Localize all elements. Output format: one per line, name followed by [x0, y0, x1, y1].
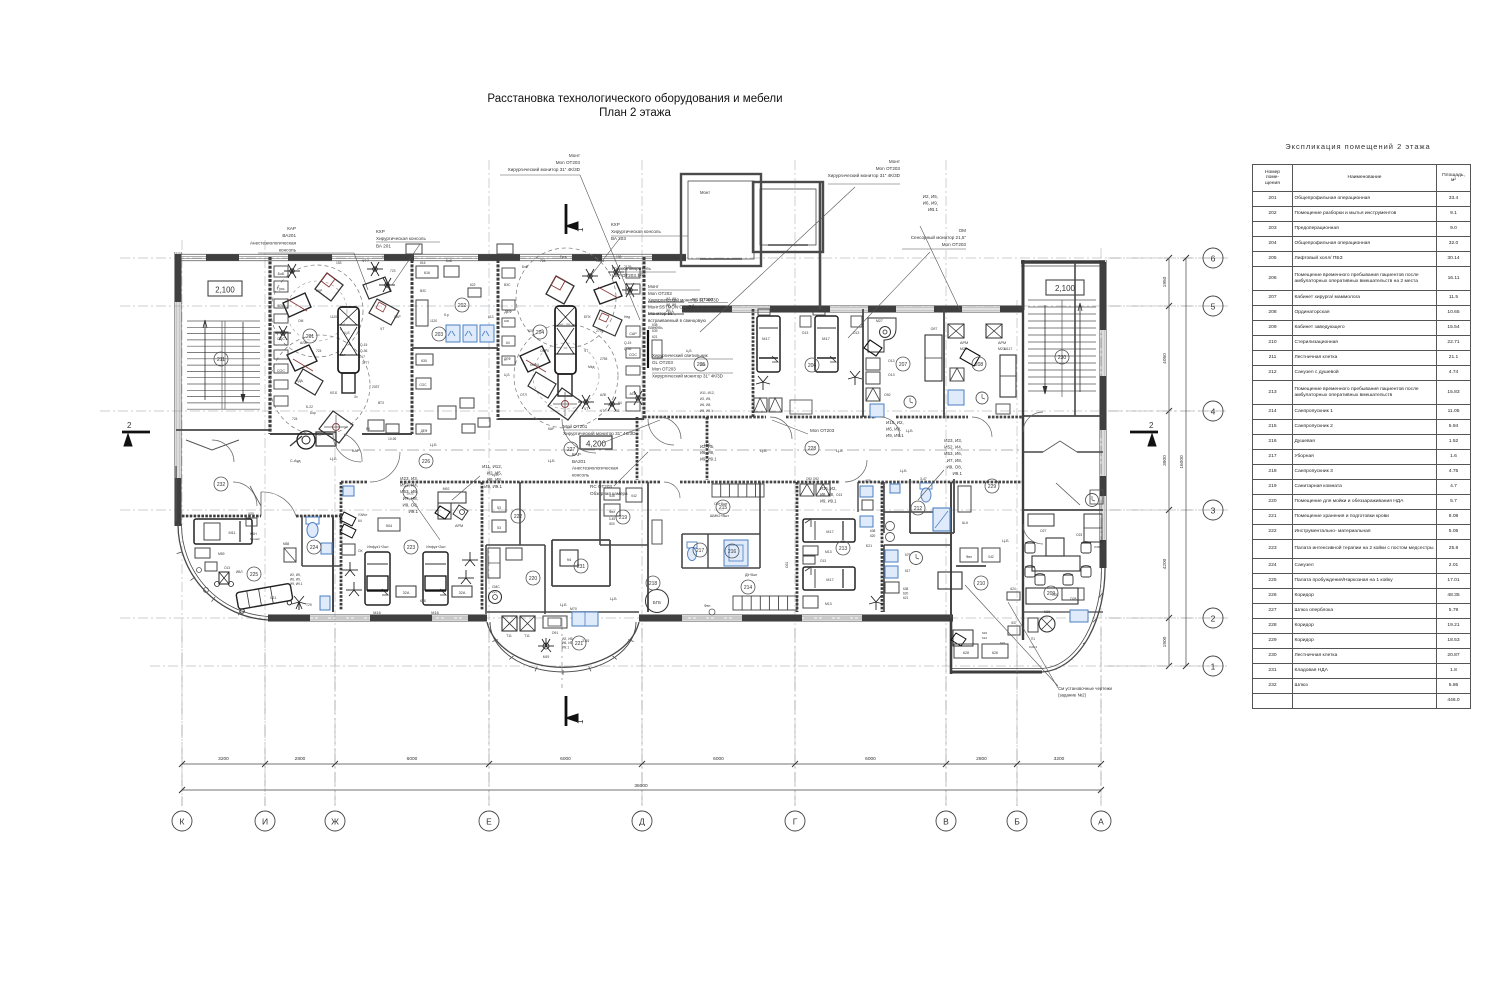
svg-text:СОС: СОС: [277, 337, 285, 341]
svg-text:218: 218: [649, 581, 658, 587]
svg-text:64: 64: [506, 341, 510, 345]
svg-text:16000: 16000: [1179, 455, 1185, 469]
svg-text:ШМК2+8шт: ШМК2+8шт: [710, 514, 729, 518]
svg-text:Т29: Т29: [306, 603, 312, 607]
svg-text:Ц-Б: Ц-Б: [836, 449, 843, 453]
svg-text:Mon ОТ203: Mon ОТ203: [648, 291, 672, 296]
svg-text:Д: Д: [639, 817, 645, 827]
svg-text:М17: М17: [826, 578, 833, 582]
svg-text:220: 220: [529, 576, 538, 582]
svg-text:ВЗС: ВЗС: [277, 304, 284, 308]
svg-text:Анестезиологическая: Анестезиологическая: [250, 240, 297, 245]
svg-text:Ц-Б: Ц-Б: [906, 429, 913, 433]
svg-text:УЗИст: УЗИст: [358, 513, 368, 517]
svg-text:Q-36: Q-36: [360, 349, 367, 353]
svg-text:223: 223: [407, 545, 416, 551]
svg-text:И23, И3,: И23, И3,: [400, 476, 418, 481]
svg-text:Е: Е: [486, 817, 492, 827]
svg-text:3-45: 3-45: [609, 517, 616, 521]
svg-text:КАР: КАР: [352, 448, 360, 453]
svg-text:3200: 3200: [218, 756, 229, 762]
svg-text:БоБ: БоБ: [446, 259, 452, 263]
svg-text:И9, И9.1: И9, И9.1: [820, 498, 837, 503]
svg-text:И52, И4,: И52, И4,: [400, 483, 418, 488]
svg-text:(задание №2): (задание №2): [1058, 692, 1087, 697]
svg-text:Ц-Б: Ц-Б: [430, 443, 437, 447]
svg-text:217: 217: [696, 548, 705, 554]
svg-text:АЛК: АЛК: [600, 393, 606, 397]
svg-text:АРМ: АРМ: [960, 341, 968, 345]
svg-text:ИВЛ: ИВЛ: [236, 570, 242, 574]
svg-text:616: 616: [420, 261, 426, 265]
svg-text:М17: М17: [762, 336, 771, 341]
svg-text:Хирургический монитор 31” 4К/3: Хирургический монитор 31” 4К/3D: [563, 430, 636, 436]
svg-text:М15: М15: [1044, 610, 1050, 614]
svg-text:Q-15: Q-15: [624, 341, 631, 345]
svg-text:О91: О91: [552, 631, 559, 635]
svg-text:Т11: Т11: [506, 634, 512, 638]
svg-text:2755: 2755: [600, 357, 608, 361]
svg-text:Ш117: Ш117: [1004, 347, 1013, 351]
svg-text:И11, И12,: И11, И12,: [700, 391, 715, 395]
svg-text:2800: 2800: [976, 756, 987, 762]
svg-text:221: 221: [575, 641, 584, 647]
svg-text:215: 215: [719, 505, 728, 511]
svg-text:Бэб: Бэб: [522, 265, 528, 269]
svg-text:Mon ОТ203: Mon ОТ203: [876, 166, 901, 171]
svg-text:36000: 36000: [634, 783, 648, 789]
svg-text:229: 229: [988, 484, 997, 490]
svg-text:Ц-Б: Ц-Б: [548, 459, 555, 463]
svg-text:НДА: НДА: [296, 379, 304, 383]
svg-text:232: 232: [217, 482, 226, 488]
svg-text:042: 042: [631, 494, 637, 498]
svg-text:ЧТ: ЧТ: [584, 349, 588, 353]
svg-text:53: 53: [497, 506, 501, 510]
svg-text:53: 53: [497, 526, 501, 530]
svg-text:М27: М27: [876, 319, 883, 323]
svg-text:2800: 2800: [295, 756, 306, 762]
svg-text:СМС: СМС: [492, 585, 500, 589]
svg-text:1: 1: [576, 227, 585, 232]
svg-text:КТБ: КТБ: [420, 599, 427, 603]
svg-text:М70: М70: [570, 607, 577, 611]
svg-text:Гусь: Гусь: [560, 255, 567, 259]
svg-text:О13: О13: [820, 559, 826, 563]
svg-text:Д5+8шт: Д5+8шт: [745, 573, 758, 577]
svg-text:225: 225: [250, 572, 259, 578]
svg-text:О92: О92: [884, 393, 891, 397]
svg-text:В: В: [943, 817, 949, 827]
svg-text:6000: 6000: [407, 756, 418, 762]
svg-text:ОТЛ: ОТЛ: [520, 393, 527, 397]
svg-text:Нед: Нед: [624, 315, 630, 319]
svg-text:6000: 6000: [865, 756, 876, 762]
svg-text:ИВ.1: ИВ.1: [928, 207, 938, 212]
svg-text:629: 629: [982, 631, 987, 635]
svg-text:ЧТ: ЧТ: [600, 409, 604, 413]
svg-text:679: 679: [865, 479, 871, 483]
svg-text:И6, И9,: И6, И9,: [923, 201, 938, 206]
svg-text:М13: М13: [825, 550, 832, 554]
svg-text:И6, И8,: И6, И8,: [886, 427, 901, 432]
svg-text:О13: О13: [888, 359, 895, 363]
svg-text:3: 3: [1211, 506, 1216, 516]
svg-text:консоль: консоль: [279, 248, 297, 253]
svg-text:И15, И2,: И15, И2,: [886, 420, 904, 425]
svg-text:Ш-6: Ш-6: [962, 521, 968, 525]
svg-text:Q-15: Q-15: [360, 343, 367, 347]
svg-text:КХР: КХР: [316, 289, 323, 293]
svg-text:6000: 6000: [560, 756, 571, 762]
svg-text:ВЗС: ВЗС: [504, 283, 511, 287]
svg-text:Mon ОТ203: Mon ОТ203: [942, 242, 967, 247]
svg-text:Фил: Фил: [609, 510, 615, 514]
svg-text:4,200: 4,200: [586, 440, 607, 449]
svg-text:И6, И8,: И6, И8,: [820, 492, 834, 497]
svg-text:КХР: КХР: [376, 229, 385, 234]
svg-text:О31: О31: [785, 561, 789, 568]
svg-text:613: 613: [488, 315, 494, 319]
svg-text:панель: панель: [648, 325, 663, 330]
svg-text:САР: САР: [629, 332, 637, 336]
svg-text:Громкоговоритель: Громкоговоритель: [612, 266, 651, 271]
svg-text:800: 800: [609, 522, 615, 526]
svg-text:210: 210: [977, 581, 986, 587]
svg-text:Ц-Б: Ц-Б: [330, 457, 337, 461]
svg-text:О28.3: О28.3: [1094, 545, 1103, 549]
svg-text:ВА201: ВА201: [572, 459, 586, 464]
svg-text:1120: 1120: [430, 319, 437, 323]
svg-text:И2, И5,: И2, И5,: [700, 444, 714, 449]
svg-text:СОС: СОС: [419, 383, 427, 387]
svg-text:3200: 3200: [1054, 756, 1065, 762]
svg-text:Гусь: Гусь: [277, 287, 284, 291]
svg-text:621: 621: [652, 335, 658, 339]
svg-text:2799: 2799: [596, 329, 604, 333]
svg-text:И6, И9,: И6, И9,: [290, 577, 301, 581]
svg-text:Инфуз+2шт: Инфуз+2шт: [426, 545, 446, 549]
svg-text:638: 638: [870, 529, 876, 533]
svg-text:616: 616: [982, 636, 987, 640]
svg-text:4050: 4050: [1162, 353, 1168, 364]
svg-text:И9.1: И9.1: [953, 471, 963, 476]
svg-text:1: 1: [576, 719, 585, 724]
svg-text:227: 227: [567, 447, 576, 453]
svg-text:624: 624: [1010, 587, 1016, 591]
svg-text:10:26: 10:26: [388, 437, 396, 441]
svg-text:209: 209: [1047, 591, 1056, 597]
svg-text:БоБ: БоБ: [278, 272, 285, 276]
svg-text:Б21: Б21: [866, 544, 872, 548]
svg-text:САР: САР: [394, 315, 402, 319]
svg-text:ОМ: ОМ: [298, 319, 304, 323]
svg-text:203Т: 203Т: [372, 385, 380, 389]
svg-text:620: 620: [903, 592, 909, 596]
svg-text:ВЗС: ВЗС: [420, 289, 427, 293]
svg-text:212: 212: [914, 506, 923, 512]
svg-text:Зх: Зх: [354, 395, 358, 399]
svg-text:Монт: Монт: [569, 153, 581, 158]
svg-text:231: 231: [577, 564, 586, 570]
svg-text:Т11: Т11: [524, 634, 530, 638]
svg-text:4: 4: [1211, 407, 1216, 417]
svg-text:94: 94: [567, 557, 572, 562]
svg-text:Ч21: Ч21: [270, 596, 276, 600]
svg-text:ЧТ: ЧТ: [380, 327, 384, 331]
svg-text:И9, И9.1: И9, И9.1: [700, 456, 717, 461]
svg-text:621: 621: [903, 596, 909, 600]
svg-text:Ц-Б: Ц-Б: [492, 473, 499, 477]
svg-text:О28: О28: [1070, 597, 1077, 601]
svg-text:2: 2: [1211, 614, 1216, 624]
svg-text:617: 617: [905, 569, 911, 573]
svg-text:4200: 4200: [1162, 558, 1168, 569]
svg-text:О92 О92: О92 О92: [806, 477, 819, 481]
svg-text:2,100: 2,100: [1055, 284, 1076, 293]
svg-text:АПК: АПК: [629, 392, 637, 396]
svg-text:203: 203: [614, 409, 620, 413]
svg-text:И: И: [262, 817, 268, 827]
svg-text:1120: 1120: [330, 315, 337, 319]
svg-text:М16: М16: [431, 611, 438, 615]
svg-text:АРМ: АРМ: [455, 524, 463, 528]
svg-text:СОС: СОС: [277, 369, 285, 373]
svg-text:АРМ: АРМ: [998, 341, 1006, 345]
svg-text:Q-36: Q-36: [624, 347, 631, 351]
svg-text:СОС: СОС: [629, 353, 637, 357]
svg-text:2: 2: [127, 421, 132, 430]
svg-text:5: 5: [1211, 302, 1216, 312]
svg-text:О23: О23: [1076, 533, 1082, 537]
svg-text:Хирургический монитор 31” 4К/3: Хирургический монитор 31” 4К/3D: [828, 172, 901, 178]
svg-text:ДЕФ: ДЕФ: [504, 310, 512, 314]
svg-text:П1: П1: [1031, 637, 1035, 641]
svg-text:КЛ-Б: КЛ-Б: [330, 391, 337, 395]
svg-text:6: 6: [1211, 254, 1216, 264]
svg-text:206: 206: [808, 363, 817, 369]
svg-text:БПХ: БПХ: [584, 315, 592, 319]
svg-text:И52, И4,: И52, И4,: [944, 445, 962, 450]
svg-text:622: 622: [470, 283, 476, 287]
svg-text:6000: 6000: [713, 756, 724, 762]
svg-text:С-Ауд: С-Ауд: [290, 459, 301, 463]
svg-text:Ц-Б: Ц-Б: [504, 373, 510, 377]
svg-text:Монт: Монт: [889, 159, 901, 164]
svg-text:Мой ОТ201: Мой ОТ201: [563, 423, 588, 429]
svg-text:Фил: Фил: [966, 555, 972, 559]
svg-text:И15, И2,: И15, И2,: [820, 486, 837, 491]
svg-text:Обзорная камера: Обзорная камера: [590, 491, 628, 496]
svg-text:201: 201: [306, 334, 315, 340]
svg-text:724: 724: [292, 417, 298, 421]
svg-text:О13: О13: [802, 331, 809, 335]
svg-text:В-17: В-17: [358, 355, 365, 359]
svg-text:М13: М13: [825, 602, 832, 606]
svg-text:Ц-Б: Ц-Б: [760, 449, 767, 453]
svg-text:М19: М19: [543, 655, 550, 659]
svg-text:628: 628: [963, 651, 969, 655]
svg-text:620: 620: [870, 534, 876, 538]
svg-text:О13: О13: [888, 373, 895, 377]
svg-text:Анестезиологическая: Анестезиологическая: [572, 466, 619, 471]
svg-text:630: 630: [421, 359, 427, 363]
svg-text:Ц-Б: Ц-Б: [900, 469, 907, 473]
svg-text:638: 638: [903, 587, 909, 591]
svg-text:И2, И5,: И2, И5,: [290, 573, 301, 577]
svg-text:Б4: Б4: [366, 427, 370, 431]
svg-text:Об7: Об7: [931, 327, 938, 331]
svg-text:202: 202: [458, 303, 467, 309]
svg-text:И23, И3,: И23, И3,: [944, 438, 962, 443]
svg-text:Ц-Б: Ц-Б: [1002, 539, 1009, 543]
svg-text:208: 208: [975, 362, 984, 368]
svg-text:723: 723: [390, 269, 396, 273]
svg-text:222: 222: [514, 514, 523, 520]
svg-text:211: 211: [217, 357, 225, 363]
svg-text:32А: 32А: [459, 591, 466, 595]
svg-text:Б-22: Б-22: [306, 405, 313, 409]
svg-text:О13: О13: [836, 493, 842, 497]
svg-text:616: 616: [1000, 641, 1005, 645]
svg-text:И9.1: И9.1: [562, 645, 569, 649]
svg-text:153: 153: [336, 261, 342, 265]
svg-text:М17: М17: [826, 530, 833, 534]
svg-text:504: 504: [386, 524, 392, 528]
svg-text:И9, И9.1: И9, И9.1: [700, 409, 713, 413]
svg-text:626: 626: [992, 651, 998, 655]
svg-text:И9, И9.1: И9, И9.1: [886, 433, 904, 438]
svg-text:207: 207: [899, 362, 908, 368]
svg-text:64: 64: [618, 401, 622, 405]
svg-text:3-47: 3-47: [920, 477, 927, 481]
svg-text:Ц-Б: Ц-Б: [560, 603, 567, 607]
svg-text:637: 637: [1011, 621, 1017, 625]
svg-text:б-р: б-р: [444, 313, 449, 317]
svg-text:616: 616: [424, 271, 430, 275]
svg-text:2: 2: [1149, 421, 1154, 430]
svg-text:Г: Г: [793, 817, 798, 827]
svg-text:216: 216: [728, 549, 737, 555]
svg-text:RC ОТ203: RC ОТ203: [590, 484, 612, 489]
svg-text:RC ОТ203: RC ОТ203: [692, 297, 714, 302]
svg-text:И9, И9.1: И9, И9.1: [290, 582, 303, 586]
svg-text:зал: зал: [340, 353, 345, 357]
svg-text:Хирургическая консоль: Хирургическая консоль: [611, 229, 661, 234]
svg-text:Монт: Монт: [648, 284, 659, 289]
svg-text:К: К: [180, 817, 185, 827]
svg-text:И53, И6,: И53, И6,: [400, 489, 418, 494]
svg-text:И7, И8,: И7, И8,: [947, 458, 962, 463]
svg-text:GL ОТ203: GL ОТ203: [652, 360, 673, 365]
svg-text:214: 214: [744, 585, 753, 591]
svg-text:КМВЦ: КМВЦ: [530, 363, 540, 367]
svg-text:Mon ОТ203: Mon ОТ203: [556, 160, 581, 165]
svg-text:М58: М58: [283, 542, 289, 546]
svg-text:М92: М92: [443, 487, 450, 491]
svg-text:И53, И6,: И53, И6,: [944, 451, 962, 456]
svg-text:219: 219: [619, 515, 628, 521]
svg-text:042: 042: [988, 555, 994, 559]
svg-text:О13: О13: [224, 566, 230, 570]
svg-text:1900: 1900: [1162, 636, 1168, 647]
svg-text:Монт: Монт: [700, 190, 710, 195]
svg-text:ВА 203: ВА 203: [611, 236, 626, 241]
svg-text:Инфуз1+2шт: Инфуз1+2шт: [367, 545, 389, 549]
svg-text:О27: О27: [1040, 529, 1047, 533]
svg-text:213: 213: [839, 546, 848, 552]
svg-text:227: 227: [492, 590, 498, 594]
svg-text:226: 226: [422, 459, 431, 465]
svg-text:И9, И9.1: И9, И9.1: [484, 484, 502, 489]
svg-text:224: 224: [310, 545, 319, 551]
svg-text:ВТЗ: ВТЗ: [378, 401, 384, 405]
svg-text:См установочные чертежи: См установочные чертежи: [1058, 686, 1113, 691]
svg-text:М16: М16: [373, 611, 380, 615]
svg-text:сос: сос: [504, 319, 510, 323]
svg-text:КАР: КАР: [287, 226, 296, 231]
svg-text:1: 1: [1211, 662, 1216, 672]
svg-text:205: 205: [697, 362, 706, 368]
svg-text:КАН: КАН: [250, 532, 257, 536]
svg-text:ОМ: ОМ: [959, 228, 967, 233]
svg-text:консоль: консоль: [572, 472, 590, 477]
svg-text:И6, И8,: И6, И8,: [700, 450, 714, 455]
svg-text:ОБУХ: ОБУХ: [540, 349, 550, 353]
svg-text:ЧТ: ЧТ: [584, 407, 588, 411]
svg-text:LSP ОТ203.1: LSP ОТ203.1: [612, 273, 640, 278]
svg-text:Ж: Ж: [331, 817, 339, 827]
svg-text:230: 230: [1058, 355, 1067, 361]
svg-text:Ц-Б: Ц-Б: [344, 331, 350, 335]
svg-text:Mon ОТ203: Mon ОТ203: [810, 428, 835, 433]
svg-text:Ц-Б: Ц-Б: [610, 597, 617, 601]
svg-text:КХР: КХР: [611, 222, 620, 227]
svg-text:Хирургический монитор 31” 4К/3: Хирургический монитор 31” 4К/3D: [508, 166, 581, 172]
svg-text:Хирургическая консоль: Хирургическая консоль: [376, 236, 426, 241]
svg-text:И7, И8,: И7, И8,: [403, 496, 418, 501]
svg-text:Бор: Бор: [310, 411, 316, 415]
svg-text:М23: М23: [960, 347, 967, 351]
svg-text:ЧТ 7: ЧТ 7: [362, 259, 369, 263]
svg-text:КАР: КАР: [548, 427, 555, 431]
svg-text:Mon ОТ203: Mon ОТ203: [652, 367, 676, 372]
svg-text:И11, И12,: И11, И12,: [482, 464, 502, 469]
svg-text:встраиваемый в свинцовую: встраиваемый в свинцовую: [648, 317, 706, 323]
svg-text:203: 203: [435, 332, 444, 338]
svg-text:228: 228: [808, 446, 817, 452]
svg-text:КХР: КХР: [528, 329, 535, 333]
svg-text:ДЕФ: ДЕФ: [421, 429, 428, 433]
svg-text:153: 153: [616, 255, 622, 259]
svg-text:ОХ: ОХ: [358, 549, 363, 553]
svg-text:Монитор 55°,: Монитор 55°,: [648, 311, 676, 316]
svg-text:М59: М59: [218, 552, 225, 556]
svg-text:ВА 201: ВА 201: [376, 243, 391, 248]
svg-text:И2, И5,: И2, И5,: [923, 194, 938, 199]
svg-text:М11: М11: [228, 531, 235, 535]
svg-text:64: 64: [358, 519, 362, 523]
svg-text:А: А: [1098, 817, 1104, 827]
svg-text:153: 153: [382, 255, 388, 259]
svg-text:И9, О8,: И9, О8,: [947, 464, 963, 469]
svg-text:3900: 3900: [1162, 455, 1168, 466]
svg-text:М17: М17: [822, 336, 831, 341]
svg-text:И25: И25: [248, 512, 254, 516]
svg-text:ДЕФ: ДЕФ: [504, 357, 511, 361]
svg-text:Сенсорный монитор 21,5”: Сенсорный монитор 21,5”: [911, 234, 967, 240]
svg-text:И2, И5,: И2, И5,: [700, 397, 711, 401]
